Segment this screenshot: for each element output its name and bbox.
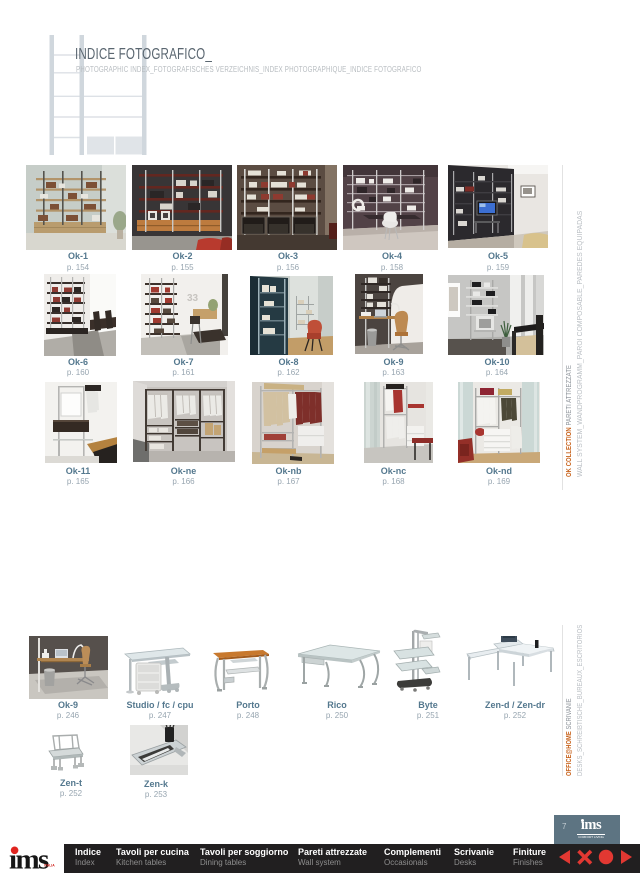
svg-text:33: 33 — [187, 293, 199, 304]
svg-text:ıms: ıms — [9, 844, 49, 874]
svg-text:ITALIA: ITALIA — [44, 864, 55, 868]
